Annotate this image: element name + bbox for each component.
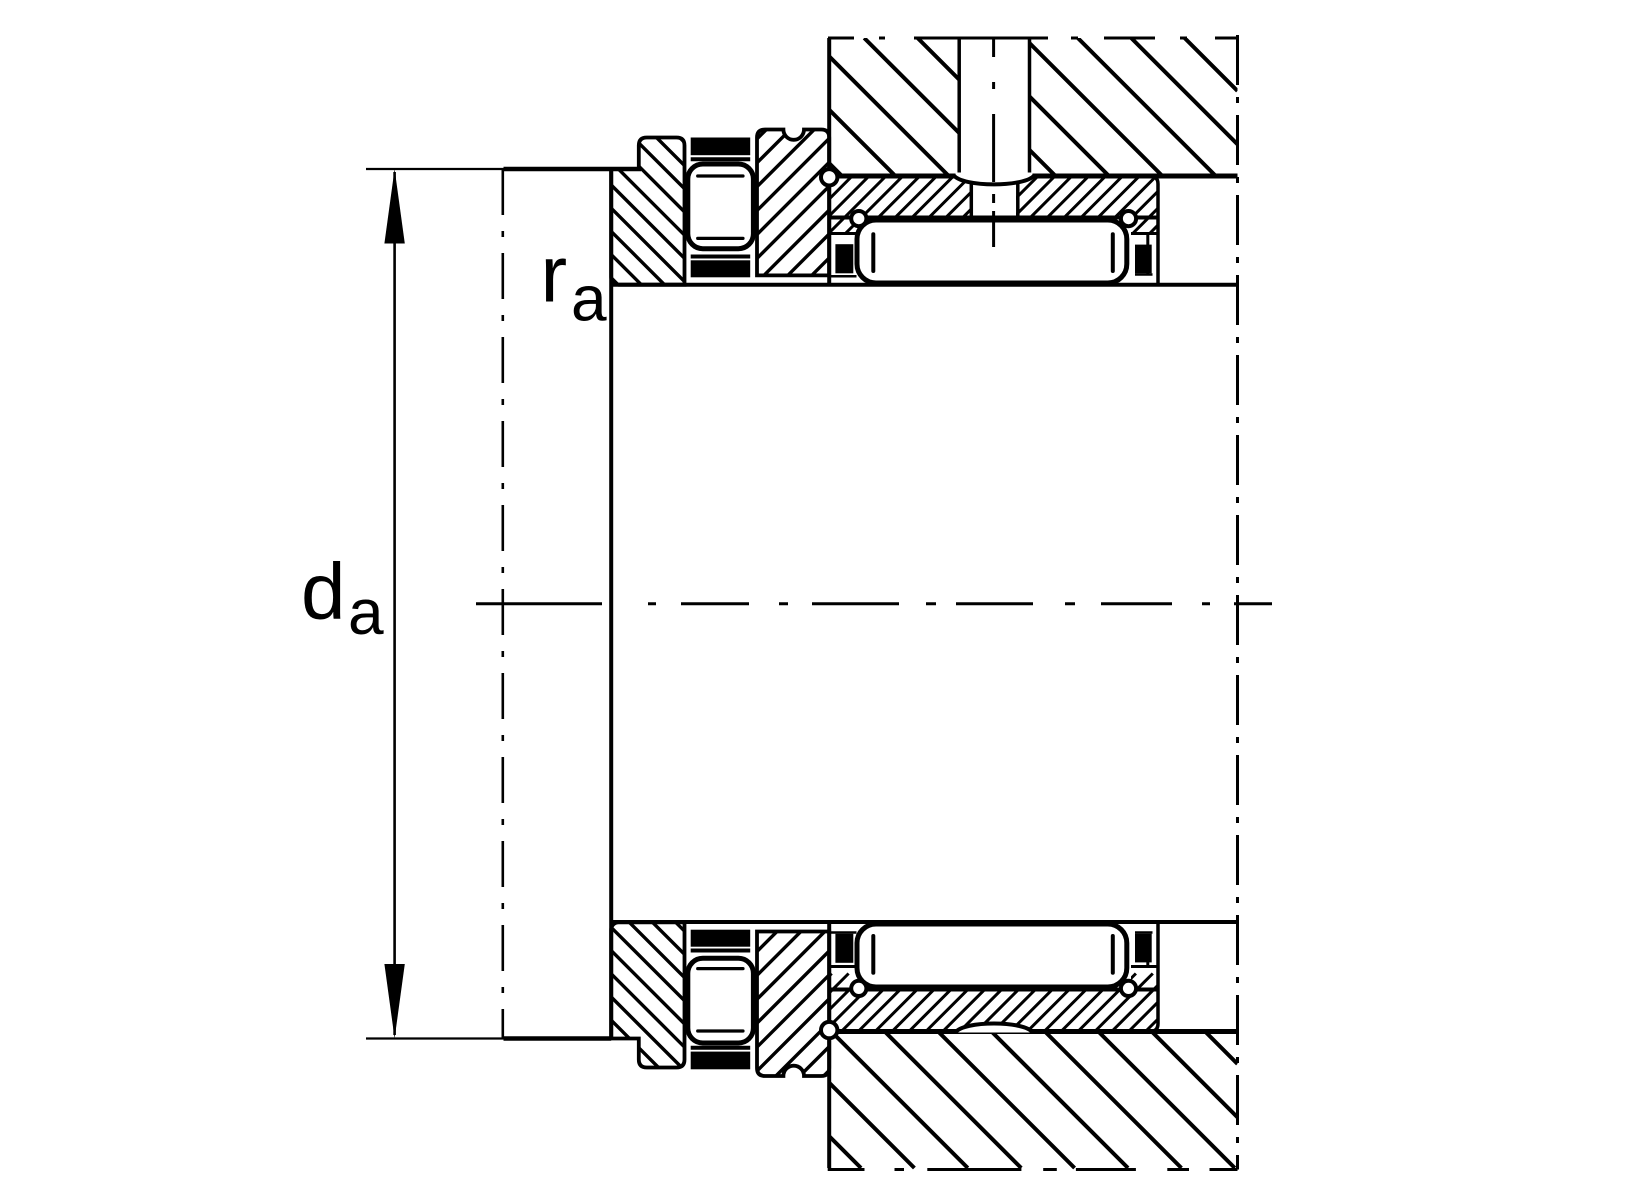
svg-text:a: a [571, 263, 607, 335]
svg-text:d: d [301, 547, 346, 636]
svg-text:a: a [348, 576, 384, 648]
svg-text:r: r [541, 230, 568, 319]
